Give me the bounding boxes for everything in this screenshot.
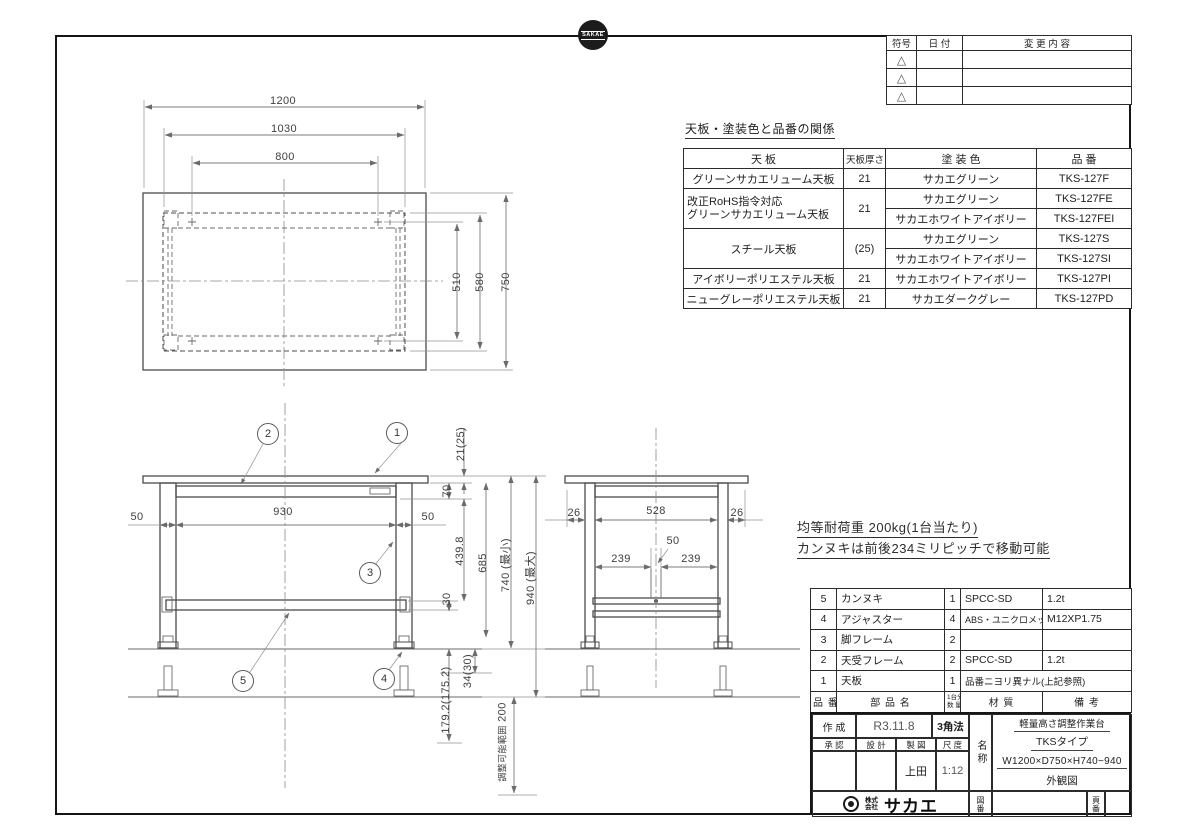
revision-col-mark: 符号 (887, 36, 917, 51)
dim-front-740-min: 740 (最小) (497, 538, 513, 592)
finish-part: TKS-127PI (1037, 269, 1132, 289)
balloon-3: 3 (359, 562, 381, 584)
dim-front-930: 930 (273, 506, 293, 518)
finish-thickness: 21 (844, 169, 886, 189)
revision-mark-icon: △ (887, 51, 917, 69)
part-material (961, 630, 1043, 651)
part-material: SPCC-SD (961, 589, 1043, 610)
finish-color: サカエホワイトアイボリー (886, 209, 1037, 229)
finish-thickness: 21 (844, 289, 886, 309)
dim-side-50: 50 (666, 535, 679, 547)
parts-row: 5 カンヌキ 1 SPCC-SD 1.2t (811, 589, 1132, 610)
dim-adjust-range-200: 調整可能範囲 200 (496, 702, 509, 781)
parts-col-no: 品 番 (811, 691, 837, 712)
dim-front-30: 30 (441, 592, 453, 605)
finish-part: TKS-127FE (1037, 189, 1132, 209)
revision-change-cell (963, 87, 1132, 105)
parts-col-qty: 1台分 数 量 (945, 691, 961, 712)
parts-col-qty-line1: 1台分 (947, 694, 958, 701)
part-no: 2 (811, 650, 837, 671)
plan-view (126, 100, 513, 386)
dim-plan-750: 750 (500, 272, 512, 292)
finish-color: サカエホワイトアイボリー (886, 249, 1037, 269)
finish-color: サカエダークグレー (886, 289, 1037, 309)
finish-col-color: 塗 装 色 (886, 149, 1037, 169)
sakae-emblem-icon (843, 796, 859, 812)
sakae-top-logo-icon: SAKAE (578, 20, 608, 50)
technical-drawing-page: SAKAE (0, 0, 1185, 838)
finish-color: サカエグリーン (886, 229, 1037, 249)
projection-method: 3角法 (932, 714, 969, 738)
dim-front-right-50: 50 (421, 511, 434, 523)
revision-table: 符号 日 付 変 更 内 容 △ △ △ (886, 35, 1132, 105)
finish-thickness: (25) (844, 229, 886, 269)
parts-col-qty-line2: 数 量 (947, 702, 958, 709)
part-no: 4 (811, 609, 837, 630)
dim-side-239-left: 239 (611, 553, 631, 565)
revision-row: △ (887, 69, 1132, 87)
drawing-number-label: 図番 (969, 791, 992, 817)
revision-date-cell (917, 87, 963, 105)
finish-thickness: 21 (844, 189, 886, 229)
scale-label: 尺 度 (936, 738, 969, 751)
drafting-label: 製 図 (896, 738, 936, 751)
product-name-line2: TKSタイプ (992, 733, 1132, 752)
approval-value (812, 751, 856, 791)
sheet-number-label: 頁番 (1087, 791, 1105, 817)
note-kannuki-pitch: カンヌキは前後234ミリピッチで移動可能 (797, 538, 1050, 559)
balloon-2: 2 (257, 423, 279, 445)
title-block: 作 成 R3.11.8 3角法 承 認 設 計 製 図 尺 度 上田 1:12 … (810, 712, 1131, 815)
finish-color: サカエホワイトアイボリー (886, 269, 1037, 289)
note-load-capacity: 均等耐荷重 200kg(1台当たり) (797, 517, 978, 538)
part-name: アジャスター (837, 609, 945, 630)
parts-header-row: 品 番 部 品 名 1台分 数 量 材 質 備 考 (811, 691, 1132, 712)
dim-front-21-25: 21(25) (455, 427, 467, 461)
part-material: 品番ニヨリ異ナル(上記参照) (961, 671, 1132, 692)
finish-tenban-line2: グリーンサカエリューム天板 (687, 209, 841, 222)
dim-front-439-8: 439.8 (454, 536, 466, 566)
finish-part: TKS-127FEI (1037, 209, 1132, 229)
balloon-5: 5 (232, 670, 254, 692)
part-material: ABS・ユニクロメッキ (961, 609, 1043, 630)
company-cell: 株式会社 サカエ (812, 791, 969, 817)
finish-color: サカエグリーン (886, 169, 1037, 189)
finish-row: アイボリーポリエステル天板 21 サカエホワイトアイボリー TKS-127PI (684, 269, 1132, 289)
finish-tenban: グリーンサカエリューム天板 (684, 169, 844, 189)
finish-col-tenban: 天 板 (684, 149, 844, 169)
dim-side-528: 528 (646, 505, 666, 517)
part-name: 脚フレーム (837, 630, 945, 651)
dim-plan-1200: 1200 (270, 95, 296, 107)
part-name: カンヌキ (837, 589, 945, 610)
revision-date-cell (917, 51, 963, 69)
finish-color: サカエグリーン (886, 189, 1037, 209)
design-label: 設 計 (856, 738, 896, 751)
dim-side-right-26: 26 (730, 507, 743, 519)
finish-table: 天 板 天板厚さ 塗 装 色 品 番 グリーンサカエリューム天板 21 サカエグ… (683, 148, 1132, 309)
part-no: 1 (811, 671, 837, 692)
part-material: SPCC-SD (961, 650, 1043, 671)
sheet-number-value (1105, 791, 1132, 817)
parts-row: 4 アジャスター 4 ABS・ユニクロメッキ M12XP1.75 (811, 609, 1132, 630)
company-prefix: 株式会社 (864, 797, 879, 812)
created-date: R3.11.8 (856, 714, 932, 738)
design-value (856, 751, 896, 791)
revision-mark-icon: △ (887, 69, 917, 87)
finish-row: 改正RoHS指令対応 グリーンサカエリューム天板 21 サカエグリーン TKS-… (684, 189, 1132, 209)
dim-side-left-26: 26 (567, 507, 580, 519)
product-name-line3: W1200×D750×H740~940 (992, 752, 1132, 772)
finish-thickness: 21 (844, 269, 886, 289)
dim-side-239-right: 239 (681, 553, 701, 565)
parts-row: 2 天受フレーム 2 SPCC-SD 1.2t (811, 650, 1132, 671)
finish-tenban: 改正RoHS指令対応 グリーンサカエリューム天板 (684, 189, 844, 229)
product-name-line4: 外観図 (992, 772, 1132, 790)
finish-table-title: 天板・塗装色と品番の関係 (685, 120, 835, 139)
revision-row: △ (887, 51, 1132, 69)
finish-part: TKS-127S (1037, 229, 1132, 249)
part-no: 5 (811, 589, 837, 610)
part-remark: 1.2t (1043, 589, 1132, 610)
adjust-range-value: 200 (497, 702, 509, 722)
finish-col-part: 品 番 (1037, 149, 1132, 169)
parts-table: 5 カンヌキ 1 SPCC-SD 1.2t 4 アジャスター 4 ABS・ユニク… (810, 588, 1132, 713)
revision-date-cell (917, 69, 963, 87)
company-name: サカエ (884, 792, 938, 817)
part-no: 3 (811, 630, 837, 651)
scale-value: 1:12 (936, 751, 969, 791)
part-qty: 2 (945, 650, 961, 671)
finish-col-thickness: 天板厚さ (844, 149, 886, 169)
finish-row: ニューグレーポリエステル天板 21 サカエダークグレー TKS-127PD (684, 289, 1132, 309)
approval-label: 承 認 (812, 738, 856, 751)
drawing-number-value (992, 791, 1087, 817)
revision-change-cell (963, 51, 1132, 69)
parts-col-name: 部 品 名 (837, 691, 945, 712)
finish-part: TKS-127F (1037, 169, 1132, 189)
revision-mark-icon: △ (887, 87, 917, 105)
finish-tenban: スチール天板 (684, 229, 844, 269)
dim-front-940-max: 940 (最大) (522, 551, 538, 605)
finish-part: TKS-127SI (1037, 249, 1132, 269)
finish-header-row: 天 板 天板厚さ 塗 装 色 品 番 (684, 149, 1132, 169)
dim-plan-580: 580 (474, 272, 486, 292)
sakae-top-logo-text: SAKAE (581, 31, 605, 40)
parts-row: 1 天板 1 品番ニヨリ異ナル(上記参照) (811, 671, 1132, 692)
parts-row: 3 脚フレーム 2 (811, 630, 1132, 651)
finish-row: グリーンサカエリューム天板 21 サカエグリーン TKS-127F (684, 169, 1132, 189)
parts-col-remark: 備 考 (1043, 691, 1132, 712)
side-view (545, 428, 800, 697)
dim-front-left-50: 50 (130, 511, 143, 523)
revision-change-cell (963, 69, 1132, 87)
name-label: 名称 (969, 714, 992, 791)
front-view (128, 403, 546, 795)
dim-front-685: 685 (477, 553, 489, 573)
product-name-line1: 軽量高さ調整作業台 (992, 715, 1132, 733)
dim-plan-510: 510 (451, 272, 463, 292)
dim-front-70: 70 (441, 484, 453, 497)
part-remark: 1.2t (1043, 650, 1132, 671)
revision-row: △ (887, 87, 1132, 105)
dim-plan-800: 800 (275, 151, 295, 163)
dim-plan-1030: 1030 (271, 123, 297, 135)
created-label: 作 成 (812, 714, 856, 738)
finish-row: スチール天板 (25) サカエグリーン TKS-127S (684, 229, 1132, 249)
finish-tenban: アイボリーポリエステル天板 (684, 269, 844, 289)
parts-col-material: 材 質 (961, 691, 1043, 712)
revision-col-change: 変 更 内 容 (963, 36, 1132, 51)
balloon-4: 4 (373, 668, 395, 690)
part-remark (1043, 630, 1132, 651)
part-name: 天受フレーム (837, 650, 945, 671)
finish-part: TKS-127PD (1037, 289, 1132, 309)
revision-header-row: 符号 日 付 変 更 内 容 (887, 36, 1132, 51)
part-qty: 2 (945, 630, 961, 651)
finish-tenban-line1: 改正RoHS指令対応 (687, 196, 841, 209)
part-qty: 1 (945, 589, 961, 610)
part-qty: 1 (945, 671, 961, 692)
finish-tenban: ニューグレーポリエステル天板 (684, 289, 844, 309)
balloon-1: 1 (386, 422, 408, 444)
dim-front-34-30: 34(30) (462, 654, 474, 688)
part-remark: M12XP1.75 (1043, 609, 1132, 630)
dim-front-179-2: 179.2(175.2) (440, 666, 452, 733)
part-name: 天板 (837, 671, 945, 692)
revision-col-date: 日 付 (917, 36, 963, 51)
drafter-name: 上田 (896, 751, 936, 791)
part-qty: 4 (945, 609, 961, 630)
adjust-range-text: 調整可能範囲 (498, 725, 508, 781)
